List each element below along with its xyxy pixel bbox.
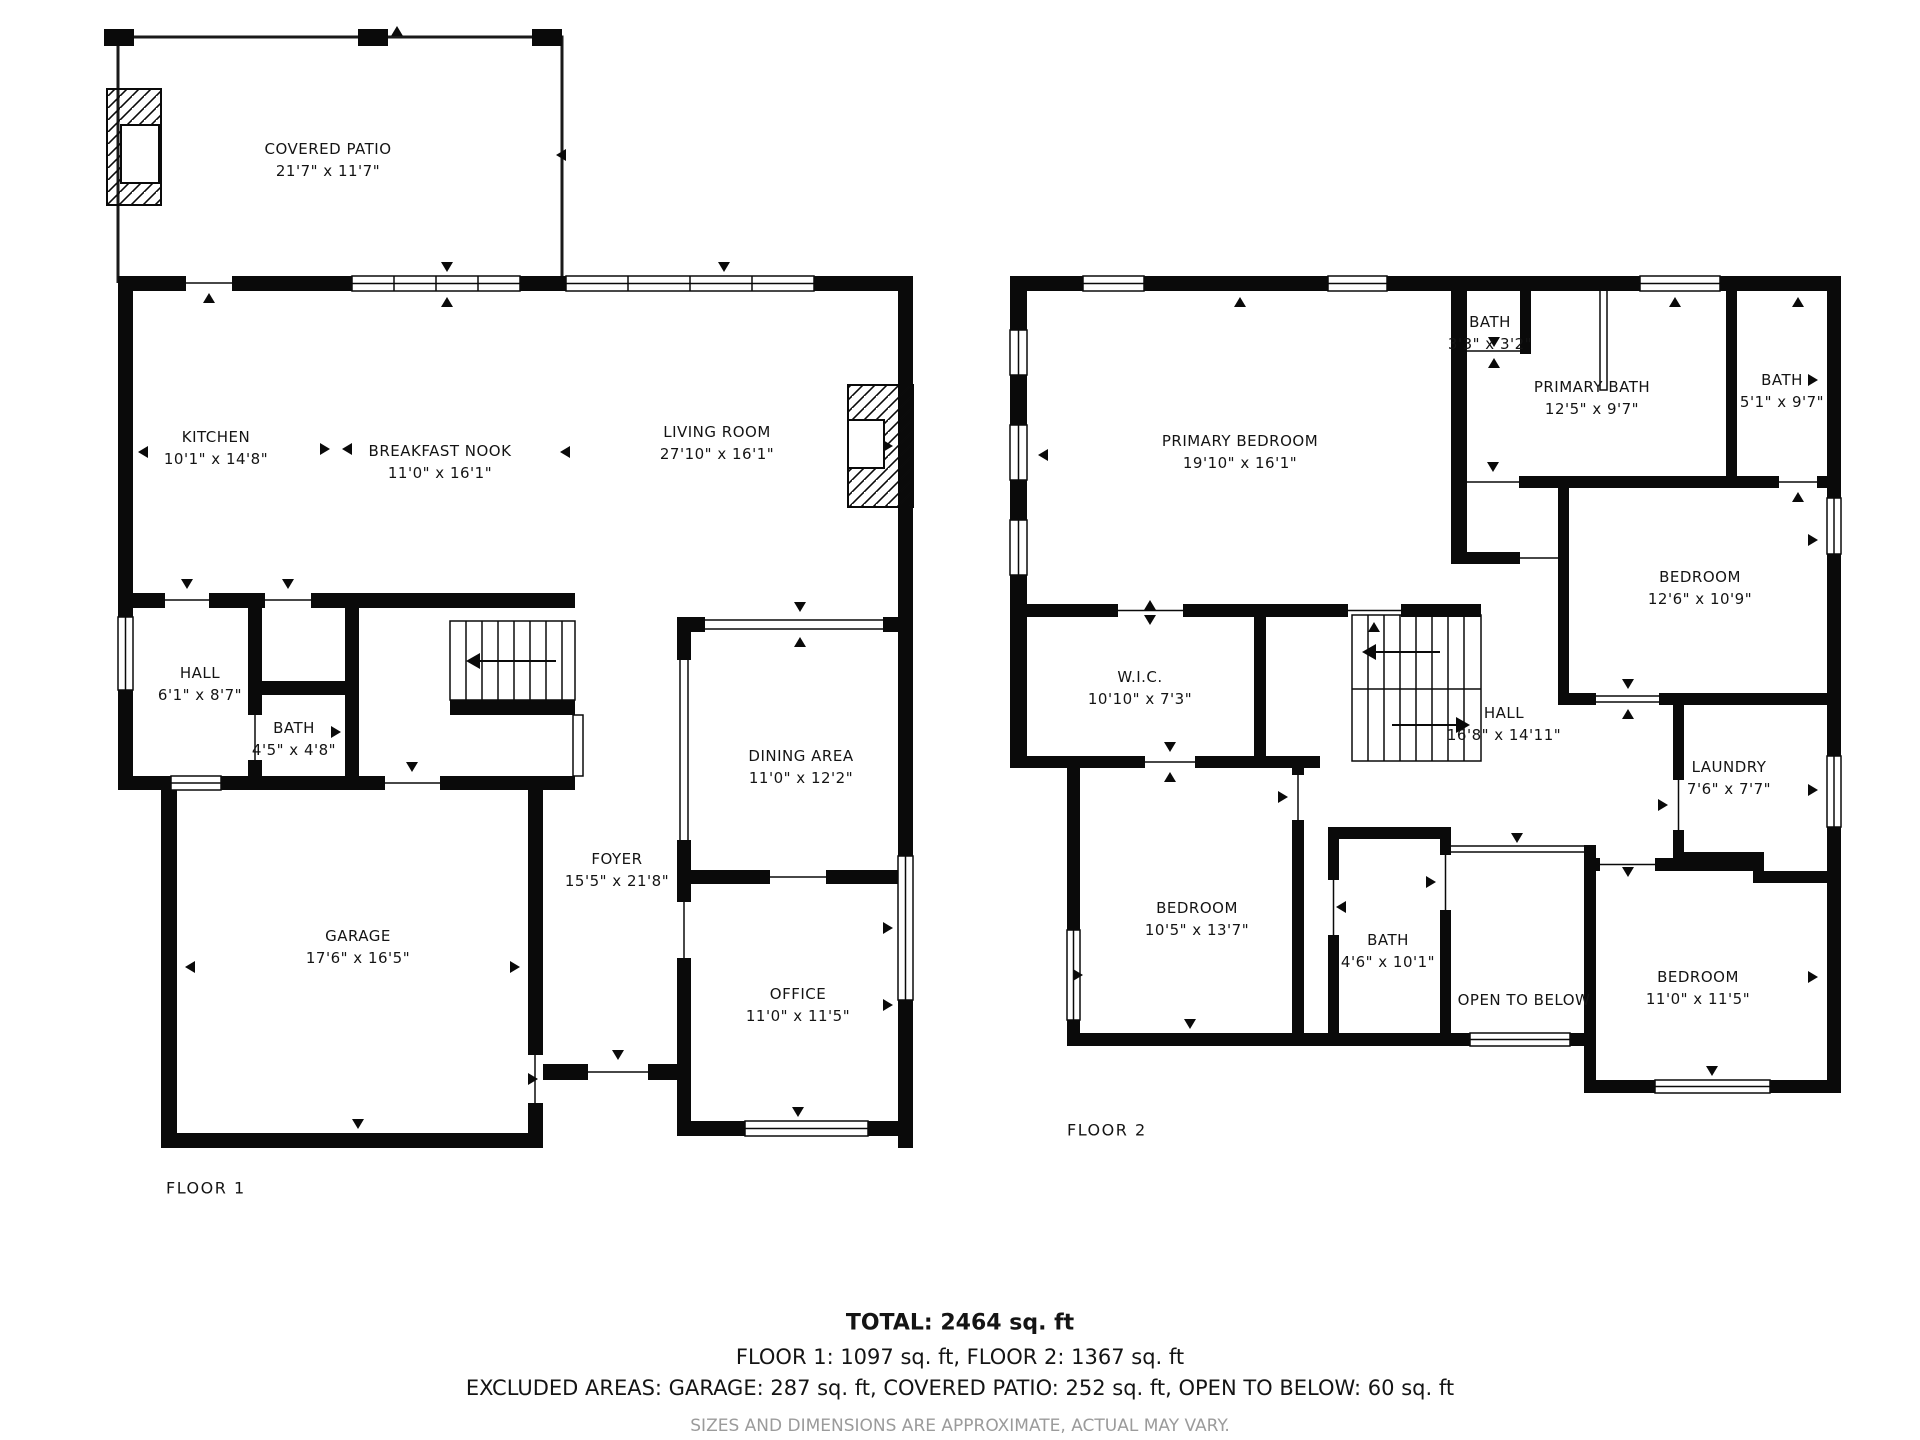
room-dims: 27'10" x 16'1" <box>660 443 774 465</box>
room-name: KITCHEN <box>164 426 268 448</box>
room-label-garage: GARAGE 17'6" x 16'5" <box>306 925 410 969</box>
room-name: DINING AREA <box>748 745 853 767</box>
room-label-open-to-below: OPEN TO BELOW <box>1458 989 1591 1011</box>
room-dims: 11'0" x 11'5" <box>1646 988 1750 1010</box>
room-name: BATH <box>252 717 336 739</box>
room-label-dining-area: DINING AREA 11'0" x 12'2" <box>748 745 853 789</box>
room-label-laundry: LAUNDRY 7'6" x 7'7" <box>1687 756 1771 800</box>
room-label-office: OFFICE 11'0" x 11'5" <box>746 983 850 1027</box>
room-dims: 10'5" x 13'7" <box>1145 919 1249 941</box>
room-label-bedroom-3: BEDROOM 11'0" x 11'5" <box>1646 966 1750 1010</box>
room-name: BEDROOM <box>1648 566 1752 588</box>
room-name: COVERED PATIO <box>264 138 391 160</box>
room-dims: 7'6" x 7'7" <box>1687 778 1771 800</box>
summary-floors: FLOOR 1: 1097 sq. ft, FLOOR 2: 1367 sq. … <box>736 1345 1184 1369</box>
room-dims: 5'1" x 9'7" <box>1740 391 1824 413</box>
room-dims: 10'10" x 7'3" <box>1088 688 1192 710</box>
room-dims: 21'7" x 11'7" <box>264 160 391 182</box>
room-label-kitchen: KITCHEN 10'1" x 14'8" <box>164 426 268 470</box>
room-label-hall-2: HALL 16'8" x 14'11" <box>1447 702 1561 746</box>
room-dims: 17'6" x 16'5" <box>306 947 410 969</box>
room-name: BATH <box>1341 929 1435 951</box>
room-name: PRIMARY BATH <box>1534 376 1650 398</box>
room-name: LAUNDRY <box>1687 756 1771 778</box>
room-name: FOYER <box>565 848 669 870</box>
room-dims: 3'3" x 3'2" <box>1448 333 1532 355</box>
room-name: W.I.C. <box>1088 666 1192 688</box>
room-dims: 11'0" x 16'1" <box>369 462 512 484</box>
floor1-title: FLOOR 1 <box>166 1179 246 1198</box>
room-name: BEDROOM <box>1646 966 1750 988</box>
room-dims: 16'8" x 14'11" <box>1447 724 1561 746</box>
room-name: BATH <box>1448 311 1532 333</box>
room-dims: 19'10" x 16'1" <box>1162 452 1318 474</box>
room-label-primary-bedroom: PRIMARY BEDROOM 19'10" x 16'1" <box>1162 430 1318 474</box>
room-label-bedroom-2: BEDROOM 10'5" x 13'7" <box>1145 897 1249 941</box>
room-dims: 4'6" x 10'1" <box>1341 951 1435 973</box>
floorplan-page: COVERED PATIO 21'7" x 11'7" KITCHEN 10'1… <box>0 0 1920 1440</box>
room-name: HALL <box>158 662 242 684</box>
labels-layer: COVERED PATIO 21'7" x 11'7" KITCHEN 10'1… <box>0 0 1920 1440</box>
room-label-living-room: LIVING ROOM 27'10" x 16'1" <box>660 421 774 465</box>
room-dims: 4'5" x 4'8" <box>252 739 336 761</box>
room-dims: 6'1" x 8'7" <box>158 684 242 706</box>
summary-disclaimer: SIZES AND DIMENSIONS ARE APPROXIMATE, AC… <box>690 1416 1229 1436</box>
floor2-title: FLOOR 2 <box>1067 1121 1147 1140</box>
room-label-bedroom-1: BEDROOM 12'6" x 10'9" <box>1648 566 1752 610</box>
room-name: HALL <box>1447 702 1561 724</box>
room-dims: 15'5" x 21'8" <box>565 870 669 892</box>
room-name: OFFICE <box>746 983 850 1005</box>
room-label-wic: W.I.C. 10'10" x 7'3" <box>1088 666 1192 710</box>
room-label-hall: HALL 6'1" x 8'7" <box>158 662 242 706</box>
room-dims: 11'0" x 11'5" <box>746 1005 850 1027</box>
room-name: OPEN TO BELOW <box>1458 989 1591 1011</box>
room-label-bath-3: BATH 4'6" x 10'1" <box>1341 929 1435 973</box>
room-name: BATH <box>1740 369 1824 391</box>
summary-total: TOTAL: 2464 sq. ft <box>846 1311 1074 1336</box>
room-label-bath-small: BATH 3'3" x 3'2" <box>1448 311 1532 355</box>
room-label-covered-patio: COVERED PATIO 21'7" x 11'7" <box>264 138 391 182</box>
room-dims: 12'5" x 9'7" <box>1534 398 1650 420</box>
room-label-primary-bath: PRIMARY BATH 12'5" x 9'7" <box>1534 376 1650 420</box>
room-name: PRIMARY BEDROOM <box>1162 430 1318 452</box>
room-dims: 11'0" x 12'2" <box>748 767 853 789</box>
room-name: BREAKFAST NOOK <box>369 440 512 462</box>
room-label-bath-2: BATH 5'1" x 9'7" <box>1740 369 1824 413</box>
summary-excluded-areas: EXCLUDED AREAS: GARAGE: 287 sq. ft, COVE… <box>466 1376 1454 1400</box>
room-name: LIVING ROOM <box>660 421 774 443</box>
room-name: GARAGE <box>306 925 410 947</box>
room-name: BEDROOM <box>1145 897 1249 919</box>
room-dims: 12'6" x 10'9" <box>1648 588 1752 610</box>
room-label-breakfast-nook: BREAKFAST NOOK 11'0" x 16'1" <box>369 440 512 484</box>
room-dims: 10'1" x 14'8" <box>164 448 268 470</box>
room-label-bath-floor1: BATH 4'5" x 4'8" <box>252 717 336 761</box>
room-label-foyer: FOYER 15'5" x 21'8" <box>565 848 669 892</box>
